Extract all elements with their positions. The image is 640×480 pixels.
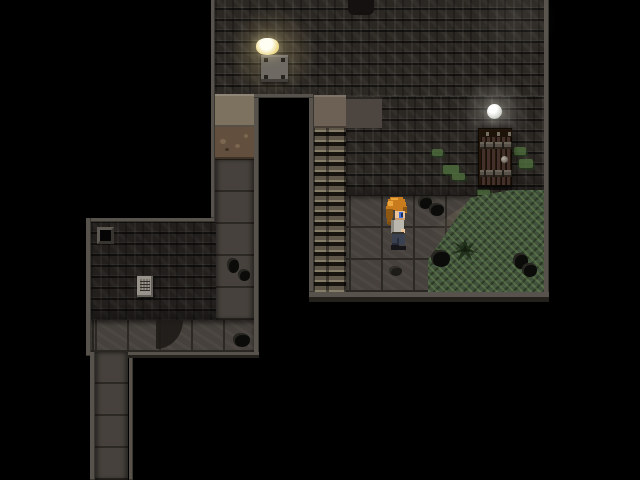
- dirt-tile-tan: [215, 94, 254, 127]
- game-viewport: [0, 0, 640, 480]
- ceiling-lamp[interactable]: [256, 38, 279, 55]
- plate-bolt: [281, 75, 285, 79]
- lamp-plate: [261, 55, 288, 82]
- wall-hatch[interactable]: [97, 227, 114, 244]
- rock: [389, 266, 402, 276]
- player-character[interactable]: [386, 197, 408, 253]
- moss-patch: [514, 147, 526, 155]
- wall-base-shadow: [91, 304, 216, 320]
- wall-base-shadow: [346, 179, 478, 196]
- map-border-lower-top: [86, 218, 215, 222]
- dirt-tile-brown: [215, 127, 254, 159]
- corridor-left[interactable]: [215, 94, 254, 320]
- map-border-upper-bottom: [309, 292, 549, 302]
- rock: [238, 269, 250, 281]
- door-band-bottom: [480, 170, 512, 177]
- map-border-corridor-right: [254, 94, 259, 358]
- rock: [431, 250, 450, 267]
- map-border-lower-bottom: [128, 352, 259, 358]
- stairs-landing[interactable]: [313, 95, 346, 128]
- door-band-top: [480, 142, 512, 149]
- wall-base-shadow: [512, 171, 545, 192]
- shrub: [451, 238, 479, 262]
- wooden-door[interactable]: [478, 128, 512, 186]
- map-border-upper-left: [211, 0, 215, 218]
- wall-alcove: [346, 97, 382, 128]
- staircase[interactable]: [313, 128, 346, 292]
- wall-dark-notch: [348, 0, 374, 15]
- dirt-spot: [220, 139, 226, 144]
- moss-patch: [432, 149, 443, 156]
- plate-bolt: [281, 58, 285, 62]
- paper-note[interactable]: [137, 276, 153, 297]
- light-orb[interactable]: [487, 104, 502, 119]
- map-border-upper-right: [544, 0, 549, 302]
- dirt-spot: [225, 148, 229, 151]
- paper-note-text: [140, 279, 150, 291]
- plate-bolt: [264, 58, 268, 62]
- map-border-corridor-down-left: [90, 352, 95, 480]
- door-handle: [501, 156, 508, 163]
- dirt-spot: [244, 134, 248, 138]
- plate-bolt: [264, 75, 268, 79]
- corridor-stone-tiles: [215, 159, 254, 320]
- map-border-corridor-down-right: [129, 358, 133, 480]
- rock: [429, 203, 444, 216]
- map-border-lower-left: [86, 218, 91, 356]
- rock: [522, 263, 537, 277]
- rock: [227, 258, 239, 273]
- map-border-void-cap: [254, 94, 314, 98]
- corridor-down[interactable]: [95, 352, 128, 480]
- door-lintel: [480, 130, 512, 137]
- dirt-spot: [235, 144, 240, 148]
- map-border-stairs-left: [309, 96, 314, 292]
- moss-patch: [519, 159, 533, 168]
- rock: [233, 333, 250, 347]
